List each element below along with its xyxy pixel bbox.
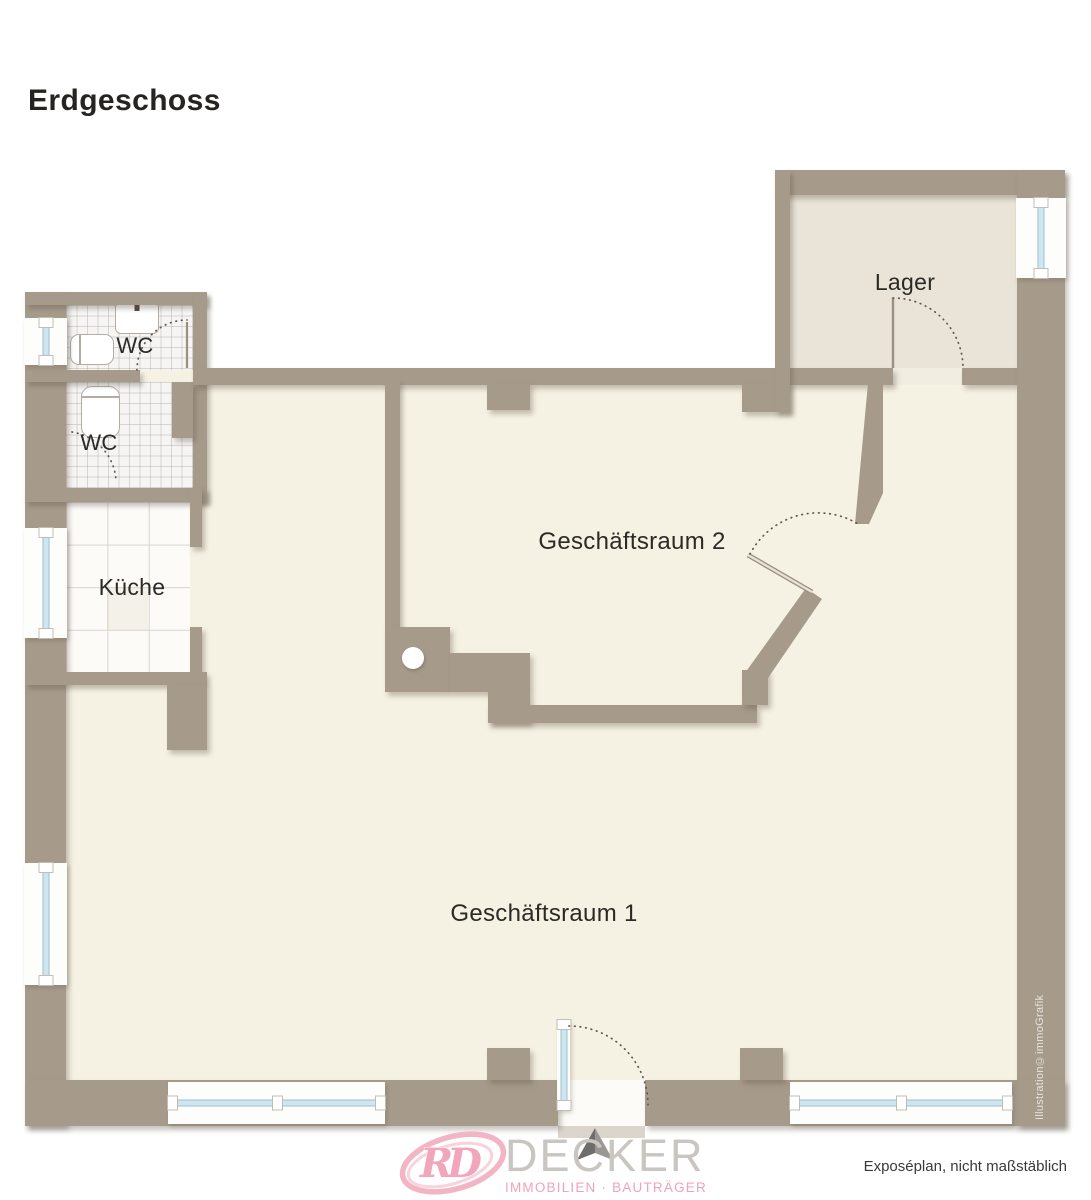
- wall-pier-a: [487, 383, 530, 410]
- wall-wc2-stub: [172, 382, 193, 438]
- room-label-raum2: Geschäftsraum 2: [482, 528, 782, 556]
- window-clip: [1034, 197, 1049, 208]
- room-label-wc1: WC: [112, 333, 158, 359]
- window-clip: [272, 1096, 283, 1111]
- page-title: Erdgeschoss: [28, 84, 221, 118]
- window-clip: [38, 355, 53, 366]
- illustration-watermark: Illustration©immoGrafik: [1034, 960, 1049, 1120]
- logo-tagline: IMMOBILIEN · BAUTRÄGER: [505, 1180, 695, 1195]
- floor-main: [65, 383, 1017, 1080]
- window-glass: [1038, 202, 1045, 274]
- wall-mid-block-b: [450, 653, 530, 692]
- window-clip: [556, 1100, 571, 1111]
- window-clip: [375, 1096, 386, 1111]
- window-clip: [789, 1096, 800, 1111]
- wall-kueche-right-upper: [190, 488, 202, 547]
- window-glass: [42, 867, 49, 981]
- window-clip: [38, 628, 53, 639]
- logo-monogram: RD: [419, 1140, 482, 1187]
- window-left-upper: [24, 318, 67, 365]
- window-clip: [556, 1019, 571, 1030]
- room-label-lager: Lager: [845, 269, 965, 296]
- wall-wc-right: [193, 292, 207, 502]
- wall-mid-vertical: [385, 380, 400, 627]
- floor-lager-door-strip: [893, 368, 962, 385]
- room-label-wc2: WC: [76, 430, 122, 456]
- toilet-wc1: [70, 334, 114, 365]
- wall-entry-pier-right: [740, 1048, 783, 1080]
- toilet-tank-line: [82, 396, 119, 398]
- window-clip: [1002, 1096, 1013, 1111]
- entry-door-leaf: [557, 1020, 570, 1110]
- door-glass: [560, 1024, 567, 1106]
- wall-left: [25, 292, 66, 1126]
- toilet-tank-line: [79, 335, 81, 364]
- window-clip: [38, 527, 53, 538]
- window-left-kueche: [24, 528, 67, 638]
- wall-wc-top: [25, 292, 207, 305]
- column: [402, 647, 424, 669]
- wall-kueche-bottom: [25, 672, 207, 685]
- window-clip: [38, 317, 53, 328]
- wall-kueche-top: [25, 488, 207, 502]
- wall-hall-stub: [167, 685, 207, 750]
- window-clip: [896, 1096, 907, 1111]
- window-left-lower: [24, 863, 67, 985]
- wall-wc-divider: [25, 370, 140, 382]
- window-lager: [1016, 198, 1066, 278]
- floorplan-page: Erdgeschoss: [0, 0, 1091, 1200]
- window-bottom-left: [168, 1082, 385, 1124]
- wall-entry-pier-left: [487, 1048, 530, 1080]
- room-label-kueche: Küche: [72, 574, 192, 601]
- window-glass: [42, 532, 49, 634]
- window-clip: [38, 862, 53, 873]
- wall-lager-left: [775, 170, 790, 412]
- wall-room-divider: [488, 705, 757, 723]
- footer-note: Exposéplan, nicht maßstäblich: [864, 1158, 1067, 1175]
- window-bottom-right: [790, 1082, 1012, 1124]
- logo-emblem: RD: [396, 1124, 510, 1200]
- sink: [115, 301, 159, 334]
- wall-top-right-segment: [962, 368, 1017, 385]
- logo-company-name: DECKER: [505, 1133, 705, 1178]
- wall-pier-c: [742, 670, 768, 705]
- window-clip: [167, 1096, 178, 1111]
- room-label-raum1: Geschäftsraum 1: [394, 900, 694, 928]
- window-clip: [38, 975, 53, 986]
- window-clip: [1034, 268, 1049, 279]
- entry-threshold: [558, 1080, 645, 1126]
